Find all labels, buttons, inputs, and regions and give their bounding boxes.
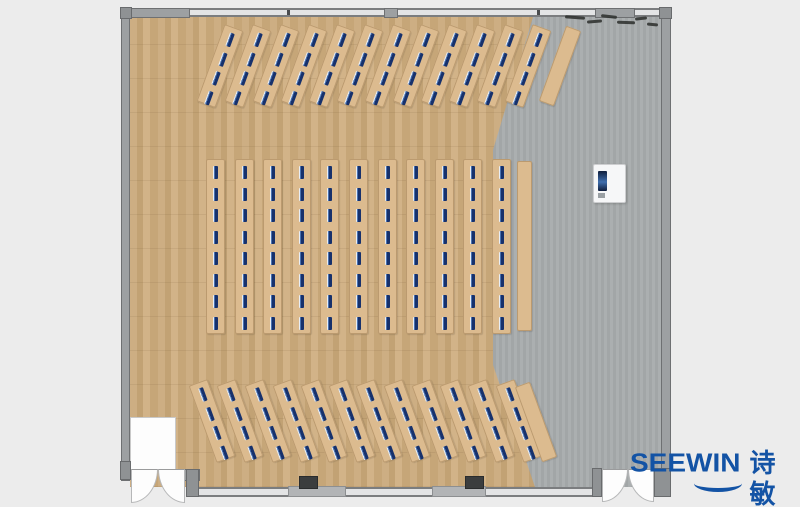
- column-pillar: [299, 476, 318, 489]
- monitor-icon: [302, 445, 311, 460]
- monitor-icon: [253, 387, 262, 402]
- monitor-icon: [505, 387, 514, 402]
- podium: [593, 164, 626, 203]
- monitor-icon: [240, 426, 249, 441]
- monitor-icon: [456, 407, 465, 422]
- monitor-icon: [281, 387, 290, 402]
- monitor-icon: [470, 445, 479, 460]
- floor-plan-canvas: SEEWIN 诗敏: [0, 0, 800, 507]
- top-wall-mullion: [384, 8, 398, 18]
- monitor-icon: [226, 387, 235, 402]
- smile-arc-icon: [694, 475, 742, 492]
- monitor-icon: [519, 426, 528, 441]
- monitor-icon: [442, 445, 451, 460]
- corner-post: [120, 7, 132, 19]
- monitor-icon: [247, 445, 256, 460]
- podium-screen-icon: [598, 171, 607, 191]
- monitor-icon: [463, 426, 472, 441]
- monitor-icon: [400, 407, 409, 422]
- monitor-icon: [365, 387, 374, 402]
- scribble-mark-icon: [565, 13, 661, 29]
- brand-logo-cjk: 诗敏: [749, 448, 800, 507]
- monitor-icon: [275, 445, 284, 460]
- wall-post: [120, 461, 131, 480]
- monitor-icon: [512, 407, 521, 422]
- monitor-icon: [386, 445, 395, 460]
- wall-post: [186, 469, 199, 497]
- monitor-icon: [435, 426, 444, 441]
- monitor-icon: [323, 426, 332, 441]
- left-wall: [121, 8, 130, 481]
- brand-logo: SEEWIN 诗敏: [630, 448, 800, 492]
- monitor-icon: [393, 387, 402, 402]
- monitor-icon: [421, 387, 430, 402]
- monitor-icon: [414, 445, 423, 460]
- monitor-icon: [219, 445, 228, 460]
- monitor-icon: [337, 387, 346, 402]
- monitor-icon: [449, 387, 458, 402]
- corner-post: [659, 7, 672, 19]
- monitor-icon: [205, 407, 214, 422]
- monitor-icon: [330, 445, 339, 460]
- window-tick-icon: [537, 10, 540, 15]
- monitor-icon: [260, 407, 269, 422]
- monitor-icon: [295, 426, 304, 441]
- monitor-icon: [358, 445, 367, 460]
- window-tick-icon: [287, 10, 290, 15]
- column-pillar: [465, 476, 484, 489]
- monitor-icon: [477, 387, 486, 402]
- right-wall: [661, 8, 671, 481]
- monitor-icon: [233, 407, 242, 422]
- monitor-icon: [379, 426, 388, 441]
- monitor-icon: [288, 407, 297, 422]
- monitor-icon: [526, 445, 535, 460]
- monitor-icon: [428, 407, 437, 422]
- monitor-icon: [212, 426, 221, 441]
- monitor-icon: [498, 445, 507, 460]
- monitor-icon: [407, 426, 416, 441]
- brand-logo-latin: SEEWIN: [630, 449, 740, 478]
- monitor-icon: [491, 426, 500, 441]
- monitor-icon: [198, 387, 207, 402]
- monitor-icon: [267, 426, 276, 441]
- bottom-window-band: [199, 487, 593, 497]
- monitor-icon: [372, 407, 381, 422]
- monitor-icon: [351, 426, 360, 441]
- desk-group-back: [0, 0, 800, 507]
- podium-panel-icon: [598, 193, 605, 198]
- door-post: [592, 468, 602, 497]
- monitor-icon: [344, 407, 353, 422]
- monitor-icon: [316, 407, 325, 422]
- monitor-icon: [484, 407, 493, 422]
- monitor-icon: [309, 387, 318, 402]
